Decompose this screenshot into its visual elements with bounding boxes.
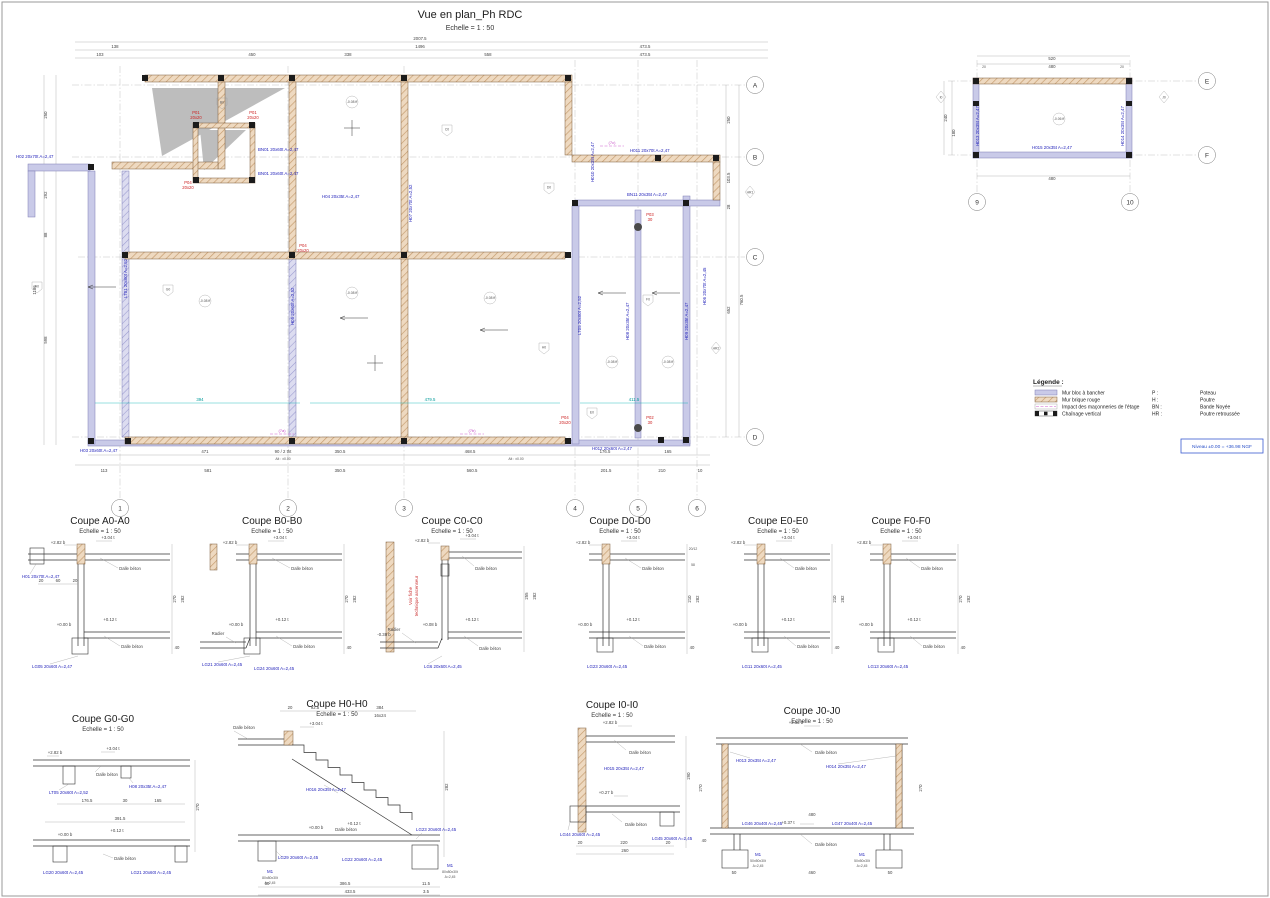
legend-item: Mur brique rouge xyxy=(1062,398,1100,404)
dalle-label: Dalle béton xyxy=(335,827,357,832)
dim: 58 xyxy=(691,563,695,567)
dim: 250 xyxy=(726,116,731,124)
col-size: 20x20 xyxy=(182,185,194,190)
coupe-title: Coupe B0-B0 xyxy=(242,516,302,527)
dim: 282 xyxy=(180,595,185,603)
wall-rightrooms-top xyxy=(575,200,720,206)
impact-lines xyxy=(270,146,624,434)
footing-size: 50x50x30t xyxy=(854,859,870,863)
footing-size: 80x80x30t xyxy=(262,876,278,880)
impact-mark: (7c) xyxy=(609,140,617,145)
elev: +3.04 t xyxy=(273,535,287,540)
dim: 460 xyxy=(808,870,816,875)
hr-marker-label: HR2 xyxy=(713,347,720,351)
dim: 468.5 xyxy=(465,449,476,454)
legend-swatch-bloc xyxy=(1035,390,1057,395)
leaders xyxy=(45,752,195,858)
coupe-title: Coupe J0-J0 xyxy=(784,706,841,717)
dim: 220 xyxy=(620,840,628,845)
column-p02 xyxy=(634,424,642,432)
beam-label-h012: H012 20x60t A=2,47 xyxy=(592,446,632,451)
elev: +2.82 b xyxy=(415,538,430,543)
footing-pad xyxy=(876,850,902,868)
beam-label-bn01: BN01 20x60t A=2,47 xyxy=(258,171,299,176)
hr-marker-label: HR1 xyxy=(747,191,754,195)
elev: +3.04 t xyxy=(101,535,115,540)
grid-label: 3 xyxy=(402,506,406,513)
dalle-label: Dalle béton xyxy=(96,772,118,777)
beam-label-h02: H02 20x70t A=2,47 xyxy=(16,154,54,159)
wall-left-blue xyxy=(88,171,95,444)
footing-size: 50x50x30t xyxy=(750,859,766,863)
coupe-scale: Echelle = 1 : 50 xyxy=(82,727,124,733)
col-size: 30 xyxy=(648,420,653,425)
stair-shaft-bot xyxy=(193,178,255,183)
section-lines xyxy=(28,544,170,646)
elev: +3.04 t xyxy=(106,746,120,751)
dim: 270 xyxy=(698,784,703,792)
beam-hatch xyxy=(77,544,85,564)
dalle-label: Dalle béton xyxy=(293,644,315,649)
dim: 165 xyxy=(664,449,672,454)
level-value: -0.08 ff xyxy=(663,360,674,364)
elev: +3.04 t xyxy=(781,535,795,540)
beam-label-h013: H013 20x35t A=2,47 xyxy=(975,106,980,146)
red-note: Voir fiche xyxy=(408,586,413,605)
dim: 270 xyxy=(918,784,923,792)
dim: 760.5 xyxy=(739,294,744,305)
dalle-label: Dalle béton xyxy=(291,566,313,571)
coupe-f0: Coupe F0-F0 Echelle = 1 : 50 +2.82 b +3.… xyxy=(857,516,971,669)
beam-label-h010: H010 20x35t A=2,47 xyxy=(590,142,595,182)
column-p03 xyxy=(634,223,642,231)
footing-label: LG20 20x60t A=2,45 xyxy=(43,870,84,875)
elev: +2.82 b xyxy=(576,540,591,545)
dim: 260 xyxy=(621,848,629,853)
dim: 50 xyxy=(732,870,737,875)
col-size: 20x20 xyxy=(559,420,571,425)
wall-ul-h xyxy=(112,162,218,169)
dalle-label: Dalle béton xyxy=(921,566,943,571)
elev: +0.12 t xyxy=(275,617,289,622)
wall-left-arm-v xyxy=(28,171,35,217)
wall-top-right-v xyxy=(565,82,572,155)
dim: 433.5 xyxy=(345,889,356,894)
grid-label: 9 xyxy=(975,200,979,207)
elev: +0.12 t xyxy=(907,617,921,622)
elev: +0.00 b xyxy=(57,622,72,627)
coupe-marker-label: B0 xyxy=(220,101,224,105)
dim: 386.5 xyxy=(340,881,351,886)
footing-label: LG22 20x60t A=2,45 xyxy=(342,857,383,862)
footing-block xyxy=(597,638,613,652)
elev: +0.12 t xyxy=(465,617,479,622)
cad-canvas: Vue en plan_Ph RDC Echelle = 1 : 50 394 … xyxy=(0,0,1270,898)
swall-right xyxy=(1126,78,1132,158)
dim: 240 xyxy=(943,114,948,122)
crosshairs xyxy=(344,120,383,371)
elev: +3.04 t xyxy=(626,535,640,540)
coupe-title: Coupe E0-E0 xyxy=(748,516,808,527)
wall-hatch xyxy=(722,744,728,828)
elev: +0.00 b xyxy=(229,622,244,627)
elev: +0.00 b xyxy=(309,825,324,830)
beam-label-h09: H09 20x35t A=2,47 xyxy=(684,302,689,340)
dim: 20 xyxy=(982,65,986,69)
beam-label-bn01: BN01 20x60t A=2,47 xyxy=(258,147,299,152)
coupe-title: Coupe C0-C0 xyxy=(421,516,483,527)
coupe-c0: Coupe C0-C0 Echelle = 1 : 50 Voir fiche … xyxy=(377,516,537,669)
footing-mark: M1 xyxy=(267,869,274,874)
legend-item: Impact des maçonneries de l'étage xyxy=(1062,405,1140,411)
coupe-j0: Coupe J0-J0 Echelle = 1 : 50 +2.82 b Dal… xyxy=(698,706,923,875)
dim: 103.5 xyxy=(726,172,731,183)
swall-top xyxy=(973,78,1132,84)
dim: 282 xyxy=(352,595,357,603)
dim: 350.5 xyxy=(335,468,346,473)
cyan-dim: 411.5 xyxy=(629,397,640,402)
coupe-title: Coupe D0-D0 xyxy=(589,516,651,527)
grid-label: F xyxy=(1205,153,1209,160)
footing-mark: M1 xyxy=(755,852,762,857)
grid-bubbles-rows: A B C D xyxy=(747,77,764,446)
dim: 471 xyxy=(201,449,209,454)
wall-grid3 xyxy=(401,82,408,438)
col-size: 20x20 xyxy=(190,115,202,120)
elev: +2.82 b xyxy=(603,720,618,725)
beam-label: H014 20x35t A=2,47 xyxy=(826,764,866,769)
beam-label-bn11: BN11 20x35t A=2,47 xyxy=(627,192,668,197)
coupe-b0: Coupe B0-B0 Echelle = 1 : 50 +2.82 b +3.… xyxy=(200,516,357,671)
wall-grid2 xyxy=(289,82,296,252)
coupe-marker-label: I0 xyxy=(940,96,943,100)
dim: 180 xyxy=(951,129,956,137)
dim-alt: Alt : ±0.00 xyxy=(275,457,290,461)
beam-label-h011: H011 20x70t A=2,47 xyxy=(630,148,670,153)
footing-label: LG21 20x60t A=2,45 xyxy=(202,662,243,667)
wall-hatch xyxy=(210,544,217,570)
dim: 581 xyxy=(204,468,212,473)
dim: 20 xyxy=(39,578,44,583)
drawing-sheet: Vue en plan_Ph RDC Echelle = 1 : 50 394 … xyxy=(0,0,1270,898)
level-value: -0.06 ff xyxy=(1054,117,1065,121)
dim: 138 xyxy=(111,44,119,49)
coupe-marker-label: G0 xyxy=(166,288,171,292)
dim: 10 xyxy=(698,468,703,473)
dim: 60 xyxy=(56,578,61,583)
elev: +0.00 b xyxy=(578,622,593,627)
footing-label: LG05 20x60t A=2,47 xyxy=(32,664,73,669)
elev: +2.82 b xyxy=(857,540,872,545)
dalle-label: Dalle béton xyxy=(923,644,945,649)
footing-label: LG23 20x60t A=2,45 xyxy=(416,827,457,832)
legend-abbr-val: Bande Noyée xyxy=(1200,405,1231,411)
beam-label-h03: H03 20x60t A=2,47 xyxy=(80,448,118,453)
level-value: -0.08 ff xyxy=(485,296,496,300)
dim: 40 xyxy=(175,645,180,650)
red-note: technique ascenseur xyxy=(414,575,419,616)
footing-block xyxy=(752,638,768,652)
beam-label: H015 20x35t A=2,47 xyxy=(604,766,644,771)
dim: 391.5 xyxy=(115,816,126,821)
dim: 250 xyxy=(43,111,48,119)
grid-label: 4 xyxy=(573,506,577,513)
wall-hatch xyxy=(896,744,902,828)
beam-label-h04: H04 20x35t A=2,47 xyxy=(322,194,360,199)
legend-abbr-val: Poutre retroussée xyxy=(1200,412,1240,418)
elev: +2.82 b xyxy=(789,720,804,725)
legend-abbr-key: BN : xyxy=(1152,405,1162,411)
footing-label: LG24 20x60t A=2,45 xyxy=(254,666,295,671)
coupe-title: Coupe F0-F0 xyxy=(872,516,931,527)
radier-label: Radier xyxy=(212,631,225,636)
level-value: -0.08 ff xyxy=(347,100,358,104)
dalle-label: Dalle béton xyxy=(797,644,819,649)
coupe-marker-label: H0 xyxy=(542,346,546,350)
dim: 16x24 xyxy=(374,713,386,718)
elev: +0.12 t xyxy=(347,821,361,826)
legend-abbr-val: Poutre xyxy=(1200,398,1215,404)
dim-alt: Alt : ±0.00 xyxy=(508,457,523,461)
dim: 520 xyxy=(1048,56,1056,61)
footing-label: LG21 20x60t A=2,45 xyxy=(131,870,172,875)
coupe-scale: Echelle = 1 : 50 xyxy=(316,712,358,718)
coupe-scale: Echelle = 1 : 50 xyxy=(591,713,633,719)
footing-block xyxy=(72,638,88,654)
dim: 210 xyxy=(687,595,692,603)
coupe-marker-label: E0 xyxy=(590,411,594,415)
elev: +2.82 b xyxy=(48,750,63,755)
col-size: 20x20 xyxy=(247,115,259,120)
stair-shaft-left xyxy=(193,128,198,178)
dim: 28 xyxy=(726,204,731,209)
dim: 282 xyxy=(444,783,449,791)
dim: 11.5 xyxy=(422,881,431,886)
dalle-label: Dalle béton xyxy=(642,566,664,571)
elev: +0.00 b xyxy=(733,622,748,627)
dim: 210 xyxy=(832,595,837,603)
grid-label: 10 xyxy=(1126,200,1134,207)
dim: 255 xyxy=(524,592,529,600)
dalle-label: Dalle béton xyxy=(114,856,136,861)
dim: 88 xyxy=(43,232,48,237)
dim: 50 xyxy=(888,870,893,875)
elev: +3.04 t xyxy=(465,533,479,538)
section-lines xyxy=(710,738,914,850)
dim: 282 xyxy=(966,595,971,603)
coupe-d0: Coupe D0-D0 Echelle = 1 : 50 +2.82 b +3.… xyxy=(576,516,700,669)
beam-label: LT05 20x60t A=2,52 xyxy=(49,790,89,795)
dim: 92.5 xyxy=(311,705,320,710)
cyan-dim: 394 xyxy=(196,397,204,402)
elev: +2.82 b xyxy=(731,540,746,545)
plan-scale: Echelle = 1 : 50 xyxy=(446,25,495,32)
leaders xyxy=(234,727,444,895)
elev: +0.12 t xyxy=(110,828,124,833)
dalle-label: Dalle béton xyxy=(815,750,837,755)
dim: 350.5 xyxy=(335,449,346,454)
grid-label: E xyxy=(1205,79,1210,86)
elev: +3.04 t xyxy=(907,535,921,540)
wall-left-arm xyxy=(28,164,90,171)
grid-label: 6 xyxy=(695,506,699,513)
beam-label-h07: H07 20x70t A=2,52 xyxy=(408,184,413,222)
dim: 50 xyxy=(265,881,270,886)
beam-hatch xyxy=(284,731,293,745)
radier-label: Radier xyxy=(388,627,401,632)
beam-label: H016 20x35t A=2,47 xyxy=(306,787,346,792)
footing-label: LG13 20x60t A=2,45 xyxy=(868,664,909,669)
dim: 176.5 xyxy=(82,798,93,803)
small-plan: 520 480 480 20 20 240 180 H013 20x35t A=… xyxy=(936,56,1216,211)
footing-steel: A=2,45 xyxy=(445,875,456,879)
dim: 480 xyxy=(1048,176,1056,181)
footing-label: LG6 20x60t A=2,45 xyxy=(424,664,462,669)
elev: +0.12 t xyxy=(626,617,640,622)
dim: 103 xyxy=(96,52,104,57)
dim: 292 xyxy=(43,191,48,199)
dim: 480 xyxy=(1048,64,1056,69)
plan-title: Vue en plan_Ph RDC xyxy=(418,9,523,21)
beam-hatch xyxy=(757,544,765,564)
beam-label-h05: H05 20x60t A=2,52 xyxy=(290,287,295,325)
dim: 165 xyxy=(154,798,162,803)
dalle-label: Dalle béton xyxy=(479,646,501,651)
small-grid-bubbles: 9 10 E F xyxy=(969,73,1216,211)
footing-pad xyxy=(722,850,748,868)
wall-corridor xyxy=(635,210,641,438)
footing-label: LG23 20x60t A=2,45 xyxy=(587,664,628,669)
dalle-label: Dalle béton xyxy=(121,644,143,649)
dim: 338 xyxy=(344,52,352,57)
beam-hatch xyxy=(602,544,610,564)
level-circle xyxy=(199,96,674,368)
beam-label-h014: H014 20x35t A=2,47 xyxy=(1120,106,1125,146)
elev: +2.82 b xyxy=(223,540,238,545)
elev: +0.37 t xyxy=(781,820,795,825)
dim: 270 xyxy=(195,803,200,811)
dim: 282 xyxy=(695,595,700,603)
leaders xyxy=(30,541,172,664)
dim: 384 xyxy=(376,705,384,710)
dim: 20 xyxy=(288,705,293,710)
grid-label: D xyxy=(753,435,758,442)
footing-block xyxy=(175,846,187,862)
elev: +2.82 b xyxy=(51,540,66,545)
legend-title: Légende : xyxy=(1033,379,1064,386)
coupe-i0: Coupe I0-I0 Echelle = 1 : 50 +2.82 b Dal… xyxy=(560,700,693,854)
dalle-label: Dalle béton xyxy=(233,725,255,730)
beam-label: H08 20x35t A=2,47 xyxy=(129,784,167,789)
main-plan: Vue en plan_Ph RDC Echelle = 1 : 50 394 … xyxy=(16,9,768,517)
dalle-label: Dalle béton xyxy=(815,842,837,847)
dalle-label: Dalle béton xyxy=(475,566,497,571)
dim: 113 xyxy=(101,468,108,473)
dim: 3.5 xyxy=(423,889,430,894)
footing-pad xyxy=(412,845,438,869)
section-lines xyxy=(380,546,522,648)
beam-block xyxy=(30,548,44,564)
dim: 558 xyxy=(484,52,492,57)
dim: 270 xyxy=(344,595,349,603)
elev: +0.00 b xyxy=(58,832,73,837)
level-markers: -0.08 ff -0.08 ff -0.08 ff -0.08 ff -0.0… xyxy=(199,96,674,368)
dim: 40 xyxy=(347,645,352,650)
coupe-g0: Coupe G0-G0 Echelle = 1 : 50 +2.82 b +3.… xyxy=(33,714,200,875)
dim: 270 xyxy=(172,595,177,603)
span-arrows xyxy=(88,285,680,332)
footing-label: LG44 20x60t A=2,45 xyxy=(560,832,601,837)
footing-label: LG47 20x40t A=2,45 xyxy=(832,821,873,826)
grid-label: 2 xyxy=(286,506,290,513)
beam-block xyxy=(121,766,131,778)
dim: 20 xyxy=(1120,65,1124,69)
dim: 560.5 xyxy=(467,468,478,473)
legend-abbr-key: H : xyxy=(1152,398,1158,404)
beam-label-lt01: LT01 20x60t A=2,52 xyxy=(123,258,128,298)
dim: 210 xyxy=(658,468,666,473)
grid-bubbles-cols: 1 2 3 4 5 6 xyxy=(112,500,706,517)
dim: 201.5 xyxy=(601,468,612,473)
grid-label: 1 xyxy=(118,506,122,513)
coupe-e0: Coupe E0-E0 Echelle = 1 : 50 +2.82 b +3.… xyxy=(731,516,845,669)
dim: 282 xyxy=(532,592,537,600)
grid-label: A xyxy=(753,83,758,90)
wall-hatch xyxy=(578,728,586,832)
legend: Légende : Mur bloc à bancher Mur brique … xyxy=(1033,379,1263,453)
dim: 40 xyxy=(702,838,707,843)
cyan-dim: 479.5 xyxy=(425,397,436,402)
dim: 473.5 xyxy=(640,52,651,57)
legend-abbr-val: Poteau xyxy=(1200,391,1216,397)
dalle-label: Dalle béton xyxy=(644,644,666,649)
beam-hatch xyxy=(249,544,257,564)
dim: 282 xyxy=(840,595,845,603)
beam-label-lt05: LT05 20x60t A=2,52 xyxy=(577,295,582,335)
footing-label: LG29 20x60t A=2,45 xyxy=(278,855,319,860)
dim: 480 xyxy=(808,812,816,817)
level-value: -0.08 ff xyxy=(607,360,618,364)
section-lines xyxy=(586,736,680,812)
leaders xyxy=(218,541,344,662)
dim: 290 xyxy=(686,772,691,780)
coupe-marker-label: A0 xyxy=(35,285,39,289)
dalle-label: Dalle béton xyxy=(795,566,817,571)
col-size: 20x20 xyxy=(297,248,309,253)
coupe-title: Coupe A0-A0 xyxy=(70,516,130,527)
beam-label-h08: H08 20x35t A=2,47 xyxy=(625,302,630,340)
footing-mark: M1 xyxy=(447,863,454,868)
elev: +0.00 b xyxy=(859,622,874,627)
impact-mark: (7b) xyxy=(468,428,476,433)
footing-label: LG11 20x60t A=2,45 xyxy=(742,664,782,669)
wall-top xyxy=(145,75,572,82)
swall-bottom xyxy=(973,152,1132,158)
dim: 20/12 xyxy=(689,547,698,551)
dim: 40 xyxy=(835,645,840,650)
wall-lt01 xyxy=(122,171,129,437)
beam-hatch xyxy=(883,544,891,564)
dim: 30 xyxy=(123,798,128,803)
elev: +3.04 t xyxy=(309,721,323,726)
footing-block xyxy=(878,638,894,652)
dalle-label: Dalle béton xyxy=(625,822,647,827)
footing-steel: A=2,45 xyxy=(857,864,868,868)
stair-shaft-right xyxy=(250,128,255,178)
beam-block xyxy=(63,766,75,784)
footing-block xyxy=(258,841,276,861)
footing-size: 80x80x30t xyxy=(442,870,458,874)
